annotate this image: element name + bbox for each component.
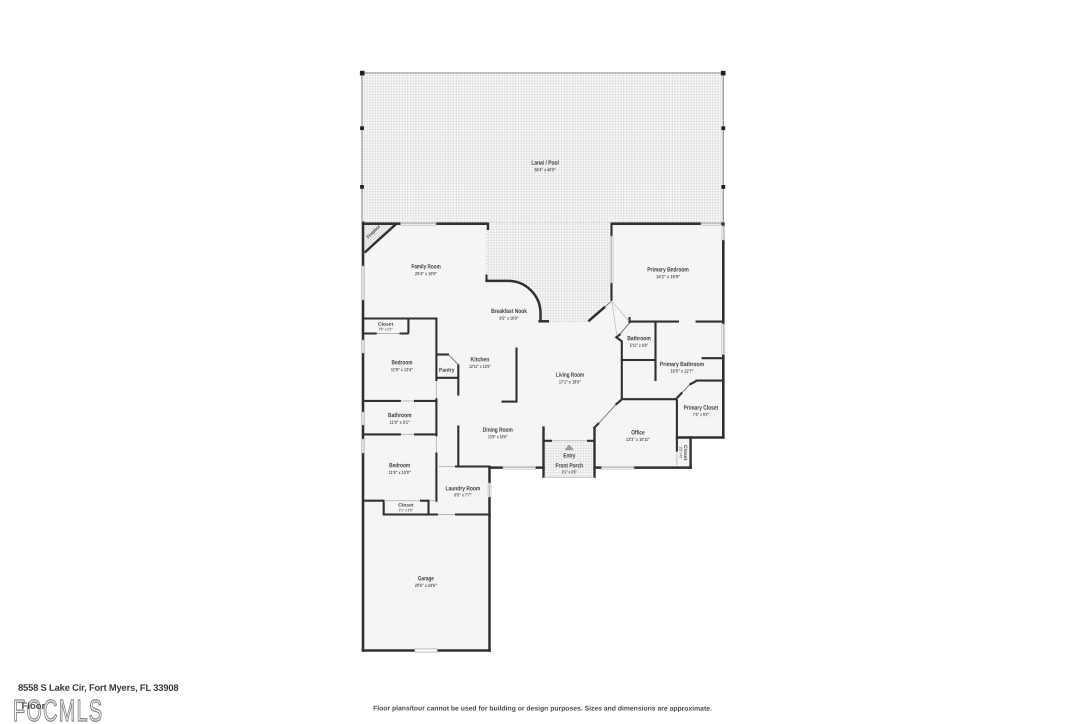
- svg-text:8'5" x 16'9": 8'5" x 16'9": [499, 316, 518, 321]
- svg-text:Bathroom: Bathroom: [627, 335, 651, 342]
- svg-text:18'2" x 16'9": 18'2" x 16'9": [656, 274, 680, 279]
- svg-text:Living Room: Living Room: [556, 372, 584, 379]
- svg-text:59'4" x 40'5": 59'4" x 40'5": [534, 167, 555, 172]
- svg-text:Bedroom: Bedroom: [389, 462, 410, 469]
- svg-text:Front Porch: Front Porch: [556, 463, 584, 470]
- svg-text:Pantry: Pantry: [439, 368, 455, 374]
- svg-text:Breakfast Nook: Breakfast Nook: [491, 308, 527, 315]
- svg-text:Floor: Floor: [22, 701, 46, 712]
- svg-text:8'1" x 5'6": 8'1" x 5'6": [562, 470, 577, 475]
- svg-text:Primary Closet: Primary Closet: [684, 405, 719, 412]
- svg-text:Primary Bathroom: Primary Bathroom: [660, 361, 705, 368]
- svg-text:5'11" x 6'6": 5'11" x 6'6": [630, 343, 648, 348]
- svg-text:8'5" x 7'7": 8'5" x 7'7": [454, 492, 471, 497]
- svg-text:12'11" x 13'8": 12'11" x 13'8": [469, 364, 491, 369]
- svg-text:13'3" x 10'11": 13'3" x 10'11": [626, 437, 650, 442]
- svg-text:20'6" x 24'6": 20'6" x 24'6": [415, 583, 437, 588]
- svg-text:17'1" x 19'8": 17'1" x 19'8": [559, 380, 581, 385]
- svg-text:13'9" x 16'6": 13'9" x 16'6": [488, 434, 508, 439]
- svg-text:Laundry Room: Laundry Room: [446, 485, 481, 492]
- svg-text:Lanai / Pool: Lanai / Pool: [531, 160, 559, 167]
- svg-text:11'9" x 10'8": 11'9" x 10'8": [389, 470, 411, 475]
- svg-text:7'4" x 9'2": 7'4" x 9'2": [693, 412, 709, 417]
- svg-text:11'9" x 5'1": 11'9" x 5'1": [390, 420, 410, 425]
- svg-text:Bathroom: Bathroom: [388, 412, 412, 419]
- svg-text:Garage: Garage: [418, 575, 434, 582]
- svg-text:11'9" x 13'4": 11'9" x 13'4": [391, 367, 413, 372]
- svg-text:Floor plans/tour cannot be use: Floor plans/tour cannot be used for buil…: [373, 705, 712, 712]
- svg-text:Entry: Entry: [563, 453, 576, 460]
- svg-text:1'11" x 4'9": 1'11" x 4'9": [679, 447, 684, 459]
- svg-text:16'5" x 12'7": 16'5" x 12'7": [670, 369, 693, 374]
- svg-text:7'1" x 2'6": 7'1" x 2'6": [399, 508, 413, 513]
- svg-text:20'4" x 15'6": 20'4" x 15'6": [415, 271, 437, 276]
- svg-text:Primary Bedroom: Primary Bedroom: [647, 266, 689, 273]
- svg-text:8558 S Lake Cir, Fort Myers, F: 8558 S Lake Cir, Fort Myers, FL 33908: [18, 682, 178, 693]
- svg-text:Kitchen: Kitchen: [471, 356, 490, 363]
- svg-text:Office: Office: [631, 429, 645, 436]
- svg-text:Family Room: Family Room: [411, 263, 441, 270]
- svg-text:Bedroom: Bedroom: [391, 359, 412, 366]
- svg-text:7'6" x 2'1": 7'6" x 2'1": [379, 327, 393, 332]
- svg-text:Dining Room: Dining Room: [483, 427, 513, 434]
